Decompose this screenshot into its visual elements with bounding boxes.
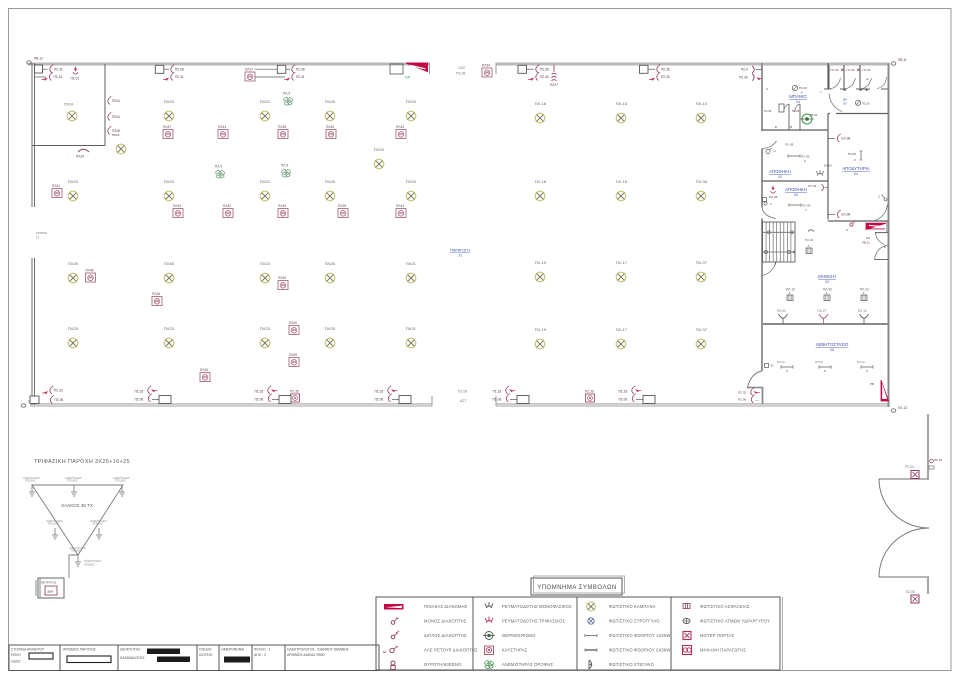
svg-text:Χ4: Χ4 <box>796 100 800 104</box>
svg-text:ΜΗΧΑΝΗ ΠΑΡΑΓΩΓΗΣ: ΜΗΧΑΝΗ ΠΑΡΑΓΩΓΗΣ <box>700 648 746 653</box>
svg-text:Ζ: Ζ <box>854 158 856 162</box>
svg-text:ΠΛ06: ΠΛ06 <box>289 353 297 357</box>
svg-text:ΠΣ.01: ΠΣ.01 <box>71 77 80 81</box>
svg-text:ΠΛ22: ΠΛ22 <box>260 179 271 184</box>
svg-text:ΠΣ.30: ΠΣ.30 <box>540 75 549 79</box>
svg-text:ΑΠΟ : 2: ΑΠΟ : 2 <box>254 653 266 657</box>
svg-text:ΛΕΒΗΤΟΣΤΑΣΙΟ: ΛΕΒΗΤΟΣΤΑΣΙΟ <box>816 342 849 347</box>
svg-text:ΠΛ.02: ΠΛ.02 <box>777 309 786 313</box>
svg-text:ΜΕΤΡΗΤΗΣ: ΜΕΤΡΗΤΗΣ <box>41 581 57 585</box>
svg-text:ΠΣ.06: ΠΣ.06 <box>493 398 502 402</box>
svg-text:ΠΣ.31: ΠΣ.31 <box>175 75 184 79</box>
svg-text:ΠΛ20: ΠΛ20 <box>406 179 417 184</box>
svg-text:ΦΩΤΙΣΤΙΚΟ ΑΤΜΩΝ ΥΔΡΑΡΓΥΡΟΥ: ΦΩΤΙΣΤΙΚΟ ΑΤΜΩΝ ΥΔΡΑΡΓΥΡΟΥ <box>700 619 770 624</box>
svg-text:ΓΕΙΩΣΗΣ: ΓΕΙΩΣΗΣ <box>84 562 95 566</box>
svg-text:ΓΕΙΩΣΗΣ: ΓΕΙΩΣΗΣ <box>71 549 82 553</box>
svg-text:Χ3: Χ3 <box>794 193 798 197</box>
svg-text:ΠΛ.09: ΠΛ.09 <box>847 68 855 72</box>
svg-text:ΠΒ.12: ΠΒ.12 <box>34 57 43 61</box>
svg-text:Χ4: Χ4 <box>854 172 858 176</box>
svg-text:Η: Η <box>804 159 806 163</box>
svg-text:ΠΛ21: ΠΛ21 <box>406 261 417 266</box>
svg-text:ΠΛ34: ΠΛ34 <box>482 64 490 68</box>
svg-text:ΔΕΗ: ΔΕΗ <box>48 590 54 594</box>
svg-text:ΧΑΛΚΟΣ 35 ΤΧ: ΧΑΛΚΟΣ 35 ΤΧ <box>61 503 93 508</box>
svg-text:ΠΛ24: ΠΛ24 <box>164 99 175 104</box>
svg-text:ΠΑ: ΠΑ <box>405 76 410 80</box>
svg-text:ΖΓ/ΠΣ09: ΖΓ/ΠΣ09 <box>36 231 47 235</box>
svg-text:ΓΕΙΩΣΗΣ: ΓΕΙΩΣΗΣ <box>67 479 78 483</box>
svg-text:ΠΣ.09: ΠΣ.09 <box>906 590 915 594</box>
svg-text:ΜΟΝΟΣ ΔΙΑΚΟΠΤΗΣ: ΜΟΝΟΣ ΔΙΑΚΟΠΤΗΣ <box>424 619 467 624</box>
svg-text:ΠΛ.19: ΠΛ.19 <box>535 260 547 265</box>
svg-text:Β: Β <box>790 125 792 129</box>
svg-text:ΠΛ.27: ΠΛ.27 <box>818 309 827 313</box>
svg-text:ΑΠΟΘΗΚΗ: ΑΠΟΘΗΚΗ <box>785 187 807 192</box>
svg-text:ΠΣ.04: ΠΣ.04 <box>905 465 914 469</box>
svg-text:ΑΠΟΔΥΤΗΡΙΑ: ΑΠΟΔΥΤΗΡΙΑ <box>842 166 869 171</box>
svg-text:ΠΛ26: ΠΛ26 <box>325 99 336 104</box>
svg-text:ΠΛ25: ΠΛ25 <box>325 326 336 331</box>
svg-text:ΠΛ24: ΠΛ24 <box>68 179 79 184</box>
svg-text:Η: Η <box>774 149 776 153</box>
svg-text:ΑΠΟΘΗΚΗ: ΑΠΟΘΗΚΗ <box>769 169 791 174</box>
svg-text:ΠΣ04: ΠΣ04 <box>112 99 120 103</box>
svg-text:ΠΣ.31: ΠΣ.31 <box>296 75 305 79</box>
svg-text:ΠΒ.11: ΠΒ.11 <box>898 58 907 62</box>
svg-text:ΠΛ.09: ΠΛ.09 <box>802 204 811 208</box>
svg-text:ΠΣ.33: ΠΣ.33 <box>54 389 63 393</box>
svg-text:ΚΑΤΑΝΑΛΩΤΗΣ :: ΚΑΤΑΝΑΛΩΤΗΣ : <box>120 656 146 660</box>
svg-text:ΠΣ.08: ΠΣ.08 <box>175 67 184 71</box>
svg-text:Α: Α <box>789 291 791 295</box>
svg-text:*W: *W <box>770 364 774 368</box>
svg-text:ΠΛ23: ΠΛ23 <box>164 326 175 331</box>
svg-text:ΠΛ.02: ΠΛ.02 <box>860 288 869 292</box>
svg-text:ΣΧΕΔΙΟ: ΣΧΕΔΙΟ <box>199 648 212 652</box>
svg-text:ΠΛ.19: ΠΛ.19 <box>535 327 547 332</box>
svg-text:ΠΛ.09: ΠΛ.09 <box>863 68 871 72</box>
svg-text:ΠΛ.16: ΠΛ.16 <box>616 101 628 106</box>
svg-text:ΠΛ46: ΠΛ46 <box>152 292 160 296</box>
svg-text:ΠΛ.15: ΠΛ.15 <box>616 179 628 184</box>
svg-text:ΠΛ.02: ΠΛ.02 <box>815 360 823 364</box>
svg-text:ΠΣ.08: ΠΣ.08 <box>296 67 305 71</box>
svg-text:ΠΛ26: ΠΛ26 <box>325 261 336 266</box>
svg-text:ΠΛ34: ΠΛ34 <box>218 125 226 129</box>
svg-text:ΠΣ.06: ΠΣ.06 <box>375 398 384 402</box>
svg-text:ΠΛ38: ΠΛ38 <box>278 125 286 129</box>
svg-text:ΑΣΤ: ΑΣΤ <box>460 399 466 403</box>
svg-text:ΠΛ46: ΠΛ46 <box>164 261 175 266</box>
svg-text:Χ6: Χ6 <box>830 348 834 352</box>
svg-text:ΦΩΤΙΣΤΙΚΟ ΑΣΦΑΛΕΙΑΣ: ΦΩΤΙΣΤΙΚΟ ΑΣΦΑΛΕΙΑΣ <box>700 604 750 609</box>
svg-text:ΡΕΥΜΑΤΟΔΟΤΗΣ ΜΟΝΟΦΑΣΙΚΟΣ: ΡΕΥΜΑΤΟΔΟΤΗΣ ΜΟΝΟΦΑΣΙΚΟΣ <box>502 604 572 609</box>
svg-text:ΠΛ21: ΠΛ21 <box>406 326 417 331</box>
svg-text:Κ: Κ <box>884 245 886 249</box>
svg-text:ΠΛ46: ΠΛ46 <box>278 276 286 280</box>
svg-text:ΠΛ.09: ΠΛ.09 <box>808 184 817 188</box>
svg-text:ΠΣ.33: ΠΣ.33 <box>255 390 264 394</box>
svg-text:ΠΣ.06: ΠΣ.06 <box>458 390 467 394</box>
svg-text:ΥΠΟΜΝΗΜΑ ΣΥΜΒΟΛΩΝ: ΥΠΟΜΝΗΜΑ ΣΥΜΒΟΛΩΝ <box>537 585 617 591</box>
svg-text:ΠΒ.12: ΠΒ.12 <box>862 241 870 245</box>
svg-text:ΠΛ43: ΠΛ43 <box>173 204 181 208</box>
svg-text:ΓΕΙΩΣΗΣ: ΓΕΙΩΣΗΣ <box>92 522 103 526</box>
svg-text:Χ2: Χ2 <box>778 175 782 179</box>
svg-text:ΠΛ.08: ΠΛ.08 <box>769 195 778 199</box>
svg-text:ΠΣ.06: ΠΣ.06 <box>255 398 264 402</box>
svg-text:ΕΛ.08: ΕΛ.08 <box>842 137 851 141</box>
svg-text:ΠΛ.12: ΠΛ.12 <box>786 288 795 292</box>
svg-text:ΠΛ.18: ΠΛ.18 <box>535 101 547 106</box>
svg-text:Χ2: Χ2 <box>825 280 829 284</box>
svg-text:Α: Α <box>826 291 828 295</box>
svg-text:ΦΩΤΙΣΤΙΚΟ ΚΑΜΠΑΝΑ: ΦΩΤΙΣΤΙΚΟ ΚΑΜΠΑΝΑ <box>609 604 656 609</box>
svg-text:ΙΣΟΓΕΙΟ: ΙΣΟΓΕΙΟ <box>199 653 213 657</box>
svg-text:ΠΛ.06: ΠΛ.06 <box>696 179 708 184</box>
svg-text:ΠΣ.35: ΠΣ.35 <box>290 390 299 394</box>
svg-text:Α: Α <box>863 291 865 295</box>
svg-text:ΠΛ.18: ΠΛ.18 <box>535 179 547 184</box>
svg-text:ΠΛ42: ΠΛ42 <box>223 204 231 208</box>
svg-text:ΠΣ.33: ΠΣ.33 <box>135 390 144 394</box>
svg-text:Β7: Β7 <box>844 102 848 106</box>
svg-text:ΙΔΙΟΚΤΗΤΗΣ :: ΙΔΙΟΚΤΗΤΗΣ : <box>120 648 142 652</box>
svg-text:ΠΣ.22: ΠΣ.22 <box>934 458 943 462</box>
svg-text:ΠΛ25: ΠΛ25 <box>68 326 79 331</box>
svg-text:ΠΛ.13: ΠΛ.13 <box>898 406 907 410</box>
svg-text:ΦΩΤΙΣΤΙΚΟ ΦΘΟΡΙΟΥ 1Χ36W: ΦΩΤΙΣΤΙΚΟ ΦΘΟΡΙΟΥ 1Χ36W <box>609 633 670 638</box>
svg-text:ΠΛ.07: ΠΛ.07 <box>696 260 708 265</box>
svg-text:ΠΛ.02: ΠΛ.02 <box>805 238 814 242</box>
svg-text:ΠΛ23: ΠΛ23 <box>260 326 271 331</box>
svg-text:ΠΣ.06: ΠΣ.06 <box>456 72 465 76</box>
svg-text:Β: Β <box>775 125 777 129</box>
svg-text:Π4: Π4 <box>866 236 870 240</box>
svg-text:ΠΣ.33: ΠΣ.33 <box>619 390 628 394</box>
svg-text:ΠΣ.33: ΠΣ.33 <box>375 390 384 394</box>
svg-text:ΠΛ24: ΠΛ24 <box>64 103 73 107</box>
svg-text:ΠΣ.06: ΠΣ.06 <box>135 398 144 402</box>
svg-text:ΠΛ.08: ΠΛ.08 <box>785 143 794 147</box>
svg-text:ΦΩΤΙΣΤΙΚΟ ΦΘΟΡΙΟΥ 2Χ36W: ΦΩΤΙΣΤΙΚΟ ΦΘΟΡΙΟΥ 2Χ36W <box>609 648 670 653</box>
svg-text:ΠΣ.09: ΠΣ.09 <box>862 102 870 106</box>
svg-text:ΦΩΤΙΣΤΙΚΟ ΣΤΕΓΑΝΟ: ΦΩΤΙΣΤΙΚΟ ΣΤΕΓΑΝΟ <box>609 662 654 667</box>
svg-text:ΠΛ28: ΠΛ28 <box>338 204 346 208</box>
svg-text:ΠΛ22: ΠΛ22 <box>260 99 271 104</box>
svg-text:.Χ1: .Χ1 <box>458 254 463 258</box>
svg-text:ΠΛ.10: ΠΛ.10 <box>696 101 708 106</box>
svg-text:ΠΛ43: ΠΛ43 <box>396 125 404 129</box>
svg-text:ΔΙΠΛΟΣ ΔΙΑΚΟΠΤΗΣ: ΔΙΠΛΟΣ ΔΙΑΚΟΠΤΗΣ <box>424 633 467 638</box>
svg-text:ΠΛ46: ΠΛ46 <box>86 269 94 273</box>
svg-text:ΕΛ.04: ΕΛ.04 <box>824 164 832 168</box>
svg-text:ΠΛ.05: ΠΛ.05 <box>764 109 772 113</box>
svg-text:Χ: Χ <box>846 228 848 232</box>
svg-text:Α: Α <box>808 244 810 248</box>
svg-text:ΠΛ.09: ΠΛ.09 <box>831 68 839 72</box>
svg-text:ΠΛ27: ΠΛ27 <box>550 83 558 87</box>
svg-text:ΠΛ45: ΠΛ45 <box>278 204 286 208</box>
svg-text:ΠΛ.02: ΠΛ.02 <box>777 360 785 364</box>
svg-text:ΑΝΕΜΙΣΤΗΡΑΣ ΟΡΟΦΗΣ: ΑΝΕΜΙΣΤΗΡΑΣ ΟΡΟΦΗΣ <box>502 662 553 667</box>
svg-text:ΜΟΤΕΡ ΠΟΡΤΑΣ: ΜΟΤΕΡ ΠΟΡΤΑΣ <box>700 633 735 638</box>
svg-text:ΡΕΥΜΑΤΟΔΟΤΗΣ ΤΡΙΦΑΣΙΚΟΣ: ΡΕΥΜΑΤΟΔΟΤΗΣ ΤΡΙΦΑΣΙΚΟΣ <box>502 619 566 624</box>
svg-text:ΑΡΙΘΜΟΣ ΑΔΕΙΑΣ R500: ΑΡΙΘΜΟΣ ΑΔΕΙΑΣ R500 <box>287 653 325 657</box>
svg-text:ΠΛ.9: ΠΛ.9 <box>281 164 288 168</box>
svg-text:ΠΛ.17: ΠΛ.17 <box>616 327 628 332</box>
svg-text:ΠΣ.04: ΠΣ.04 <box>810 113 818 117</box>
svg-text:ΠΛ31: ΠΛ31 <box>52 184 60 188</box>
svg-text:ΠΛ.9: ΠΛ.9 <box>283 92 290 96</box>
svg-text:ΠΛ.07: ΠΛ.07 <box>696 327 708 332</box>
svg-text:ΠΛ.12: ΠΛ.12 <box>857 360 865 364</box>
svg-text:ΠΣ.35: ΠΣ.35 <box>540 67 549 71</box>
svg-text:ΘΕΡΜΟΣΙΦΩΝΟ: ΘΕΡΜΟΣΙΦΩΝΟ <box>502 633 536 638</box>
svg-text:ΗΛΕΚΤΡΟΔΙΟ: ΗΛΕΚΤΡΟΔΙΟ <box>84 559 101 563</box>
svg-text:ΠΛ20: ΠΛ20 <box>406 99 417 104</box>
svg-text:ΠΛ25: ΠΛ25 <box>68 261 79 266</box>
svg-text:ΠΛ24: ΠΛ24 <box>164 179 175 184</box>
svg-text:ΠΣ.24: ΠΣ.24 <box>54 75 63 79</box>
svg-text:ΠΣ.30: ΠΣ.30 <box>661 75 670 79</box>
svg-text:ΠΛ.09: ΠΛ.09 <box>848 152 856 156</box>
svg-text:ΠΛ20: ΠΛ20 <box>374 147 385 152</box>
svg-text:ΠΑΡΑΓΩΓΗ: ΠΑΡΑΓΩΓΗ <box>450 249 470 253</box>
svg-text:ΠΣ04: ΠΣ04 <box>112 115 120 119</box>
svg-text:ΠΒ: ΠΒ <box>870 382 874 386</box>
svg-text:Ε: Ε <box>867 77 869 81</box>
svg-text:ΠΛ.9: ΠΛ.9 <box>215 165 222 169</box>
svg-text:ΑΡΙΘΜΟΣ ΠΑΡΟΧΗΣ: ΑΡΙΘΜΟΣ ΠΑΡΟΧΗΣ <box>63 648 96 652</box>
svg-text:ΠΛ26: ΠΛ26 <box>325 179 336 184</box>
svg-text:ΓΣ: ΓΣ <box>36 236 40 240</box>
svg-text:ΠΛ23: ΠΛ23 <box>260 261 271 266</box>
svg-text:ΠΛ.09: ΠΛ.09 <box>801 155 810 159</box>
svg-text:ΠΣ.33: ΠΣ.33 <box>493 390 502 394</box>
svg-text:ΠΛ.05: ΠΛ.05 <box>792 109 800 113</box>
svg-text:ΠΟΛΗ: ΠΟΛΗ <box>11 653 21 657</box>
svg-text:ΠΣ.30: ΠΣ.30 <box>739 76 748 80</box>
svg-text:ΠΣ.31: ΠΣ.31 <box>54 67 63 71</box>
svg-text:Μ: Μ <box>866 369 868 373</box>
svg-text:ΠΛ45: ΠΛ45 <box>326 125 334 129</box>
svg-text:ΜΠΑΝΙΟ: ΜΠΑΝΙΟ <box>789 94 807 99</box>
svg-text:ΠΣ.35: ΠΣ.35 <box>661 67 670 71</box>
svg-text:ΦΥΛΛΟ : 1: ΦΥΛΛΟ : 1 <box>254 648 271 652</box>
svg-text:ΠΛ37: ΠΛ37 <box>245 68 253 72</box>
svg-text:Μ: Μ <box>786 369 788 373</box>
svg-text:ΠΣ.9: ΠΣ.9 <box>741 68 748 72</box>
svg-text:ΠΛ44: ΠΛ44 <box>396 204 404 208</box>
svg-text:ΚΑΥΣΤΗΡΑΣ: ΚΑΥΣΤΗΡΑΣ <box>502 648 528 653</box>
svg-text:ΕΛ.08: ΕΛ.08 <box>842 213 851 217</box>
svg-text:ΕΚΘΕΣΗ: ΕΚΘΕΣΗ <box>818 274 836 279</box>
svg-text:ΠΛ.02: ΠΛ.02 <box>823 288 832 292</box>
svg-text:ΣΤΟΙΧΕΙΑ ΑΚΙΝΗΤΟΥ: ΣΤΟΙΧΕΙΑ ΑΚΙΝΗΤΟΥ <box>11 648 45 652</box>
svg-text:ΑΛΕ ΡΕΤΟΥΡ ΔΙΑΚΟΠΤΗΣ: ΑΛΕ ΡΕΤΟΥΡ ΔΙΑΚΟΠΤΗΣ <box>424 648 478 653</box>
svg-text:ΓΕΙΩΣΗΣ: ΓΕΙΩΣΗΣ <box>25 479 36 483</box>
svg-text:ΠΣ.06: ΠΣ.06 <box>738 398 747 402</box>
svg-text:ΠΣ.06: ΠΣ.06 <box>55 398 64 402</box>
svg-text:Μ: Μ <box>824 369 826 373</box>
svg-text:Ζ: Ζ <box>878 195 880 199</box>
svg-text:ΓΕΙΩΣΗΣ: ΓΕΙΩΣΗΣ <box>48 522 59 526</box>
svg-text:ΠΙΝΑΚΑΣ ΔΙΑΝΟΜΗΣ: ΠΙΝΑΚΑΣ ΔΙΑΝΟΜΗΣ <box>424 604 468 609</box>
svg-text:ΟΔΟΣ: ΟΔΟΣ <box>11 660 21 664</box>
svg-text:ΦΩΤΙΣΤΙΚΟ ΣΤΡΟΓΓΥΛΟ: ΦΩΤΙΣΤΙΚΟ ΣΤΡΟΓΓΥΛΟ <box>609 619 660 624</box>
svg-text:ΠΛ36: ΠΛ36 <box>200 368 208 372</box>
svg-text:ΠΛ40: ΠΛ40 <box>289 321 297 325</box>
svg-text:ΗΛΕΚΤΡΟΛΟΓΟΣ : ΙΩΑΝΝΟΥ ΙΩΑΝΝΗΣ: ΗΛΕΚΤΡΟΛΟΓΟΣ : ΙΩΑΝΝΟΥ ΙΩΑΝΝΗΣ <box>287 648 349 652</box>
svg-text:ΓΕΙΩΣΗΣ: ΓΕΙΩΣΗΣ <box>115 479 126 483</box>
svg-text:ΘΥΡΟΤΗΛΕΦΩΝΟ: ΘΥΡΟΤΗΛΕΦΩΝΟ <box>424 662 462 667</box>
svg-text:ΗΜΕΡΟΜΗΝΙΑ: ΗΜΕΡΟΜΗΝΙΑ <box>222 648 246 652</box>
svg-text:ΠΣ.32: ΠΣ.32 <box>738 391 747 395</box>
svg-text:Α: Α <box>766 87 768 91</box>
svg-text:ΠΣ.36: ΠΣ.36 <box>585 390 594 394</box>
svg-text:ΠΣ.06: ΠΣ.06 <box>619 398 628 402</box>
svg-text:ΠΛ.17: ΠΛ.17 <box>616 260 628 265</box>
svg-text:ΠΛ24: ΠΛ24 <box>76 155 84 159</box>
svg-text:ΠΣ24: ΠΣ24 <box>112 133 120 137</box>
svg-text:ΤΡΙΦΑΣΙΚΗ ΠΑΡΟΧΗ 3Χ25+16+25: ΤΡΙΦΑΣΙΚΗ ΠΑΡΟΧΗ 3Χ25+16+25 <box>34 459 130 465</box>
svg-text:ΠΣ.12: ΠΣ.12 <box>858 309 867 313</box>
svg-text:1/Χ2: 1/Χ2 <box>458 66 465 70</box>
svg-text:ΠΛ.09: ΠΛ.09 <box>799 86 807 90</box>
svg-text:ΠΛ47: ΠΛ47 <box>163 125 171 129</box>
